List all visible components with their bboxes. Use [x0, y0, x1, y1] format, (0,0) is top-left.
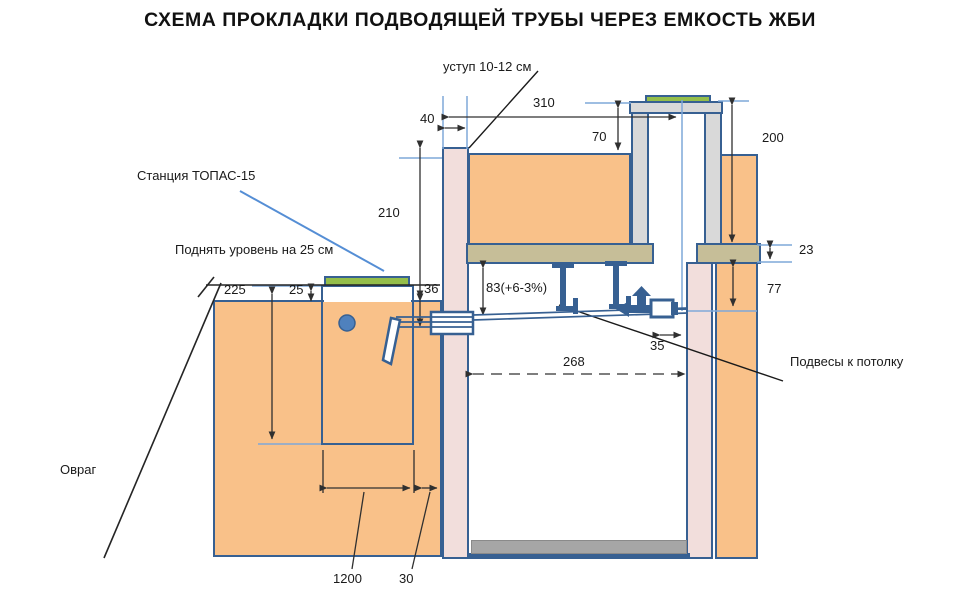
- ground-break-tick: [198, 277, 214, 297]
- raise-level-label: Поднять уровень на 25 см: [175, 242, 333, 257]
- station-lid-green: [324, 276, 410, 287]
- ceiling-slab-left: [466, 243, 654, 264]
- soil-column-right: [715, 262, 758, 559]
- pipe-fitting-valve: [616, 286, 688, 317]
- dim-36: 36: [424, 281, 438, 296]
- ravine-slope-line: [104, 283, 221, 558]
- diagram-canvas: СХЕМА ПРОКЛАДКИ ПОДВОДЯЩЕЙ ТРУБЫ ЧЕРЕЗ Е…: [0, 0, 960, 600]
- linework-overlay: [0, 0, 960, 600]
- shaft-wall-left: [631, 112, 649, 245]
- shaft-lid-green: [645, 95, 711, 103]
- diagram-title: СХЕМА ПРОКЛАДКИ ПОДВОДЯЩЕЙ ТРУБЫ ЧЕРЕЗ Е…: [0, 9, 960, 32]
- dim-35: 35: [650, 338, 664, 353]
- dim-77: 77: [767, 281, 781, 296]
- ledge-leader-line: [469, 71, 538, 148]
- dim-225: 225: [224, 282, 246, 297]
- dim-310: 310: [533, 95, 555, 110]
- dim-268: 268: [563, 354, 585, 369]
- union-coupling: [651, 300, 673, 317]
- shaft-wall-right: [704, 112, 722, 245]
- backfill-left: [468, 153, 631, 245]
- station-label: Станция ТОПАС-15: [137, 168, 255, 183]
- dim-83: 83(+6-3%): [486, 280, 547, 295]
- dim-210: 210: [378, 205, 400, 220]
- dim-70: 70: [592, 129, 606, 144]
- ceiling-slab-right: [696, 243, 761, 264]
- ledge-label: уступ 10-12 см: [443, 59, 531, 74]
- station-tank-outline: [321, 285, 414, 445]
- up-arrow-vent: [632, 286, 651, 296]
- dim-200: 200: [762, 130, 784, 145]
- dim-40: 40: [420, 111, 434, 126]
- dim-30: 30: [399, 571, 413, 586]
- tank-right-wall: [686, 262, 713, 559]
- tank-left-wall: [442, 147, 469, 559]
- dim-25: 25: [289, 282, 303, 297]
- hanger-1: [552, 263, 578, 314]
- floor-slab: [471, 540, 687, 554]
- hanger-2: [605, 261, 631, 312]
- station-leader-line: [240, 191, 384, 271]
- dim-1200: 1200: [333, 571, 362, 586]
- dim-23: 23: [799, 242, 813, 257]
- backfill-right: [720, 154, 758, 245]
- pipe-hangers: [552, 261, 631, 314]
- hangers-label: Подвесы к потолку: [790, 354, 903, 369]
- ravine-label: Овраг: [60, 462, 96, 477]
